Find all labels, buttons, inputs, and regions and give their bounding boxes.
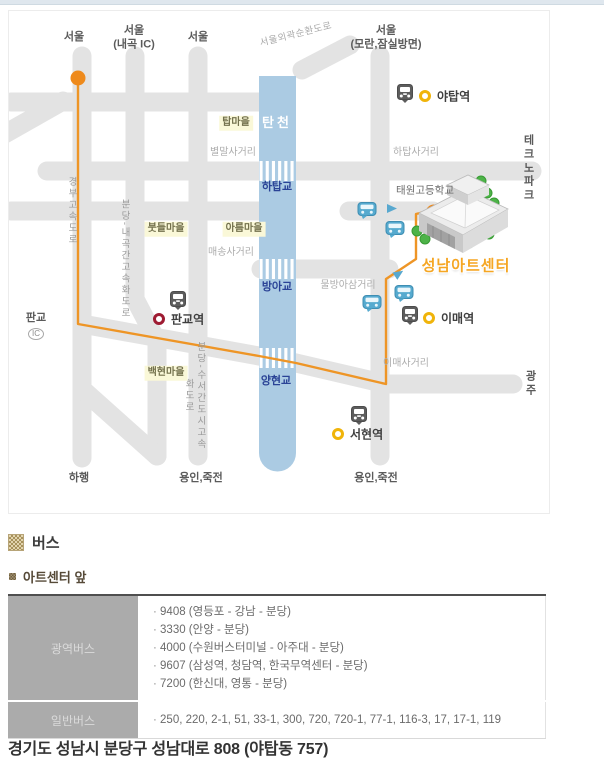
bus-route-item: 250, 220, 2-1, 51, 33-1, 300, 720, 720-1…: [153, 711, 535, 729]
page-top-strip: [0, 0, 604, 5]
bus-category-cell: 일반버스: [8, 702, 138, 738]
section-checker-icon: [8, 534, 24, 551]
station-line-ring: [332, 428, 344, 440]
bus-subsection-header: 아트센터 앞: [9, 567, 86, 586]
bus-route-item: 4000 (수원버스터미널 - 아주대 - 분당): [153, 639, 535, 657]
subsection-bullet-icon: [9, 573, 16, 580]
bus-table-row: 일반버스250, 220, 2-1, 51, 33-1, 300, 720, 7…: [8, 700, 546, 738]
bus-table-row: 광역버스9408 (영등포 - 강남 - 분당)3330 (안양 - 분당)40…: [8, 596, 546, 700]
station-label: 서현역: [350, 426, 383, 443]
bus-route-item: 3330 (안양 - 분당): [153, 621, 535, 639]
bus-route-item: 9607 (삼성역, 청담역, 한국무역센터 - 분당): [153, 657, 535, 675]
station-label: 이매역: [441, 310, 474, 327]
bus-routes-cell: 250, 220, 2-1, 51, 33-1, 300, 720, 720-1…: [138, 702, 546, 738]
bus-route-item: 9408 (영등포 - 강남 - 분당): [153, 603, 535, 621]
station-label: 판교역: [171, 311, 204, 328]
station-label: 야탑역: [437, 88, 470, 105]
address-text: 경기도 성남시 분당구 성남대로 808 (야탑동 757): [8, 735, 328, 759]
river-tancheon: [259, 76, 296, 472]
arts-center-building: [412, 175, 508, 253]
bus-category-cell: 광역버스: [8, 596, 138, 700]
bus-routes-cell: 9408 (영등포 - 강남 - 분당)3330 (안양 - 분당)4000 (…: [138, 596, 546, 700]
bus-section-title: 버스: [32, 532, 60, 553]
station-line-ring: [153, 313, 165, 325]
station-line-ring: [423, 312, 435, 324]
bus-section-header: 버스: [8, 532, 60, 553]
bus-route-item: 7200 (한신대, 영통 - 분당): [153, 675, 535, 693]
bus-subsection-title: 아트센터 앞: [23, 567, 86, 586]
bus-table: 광역버스9408 (영등포 - 강남 - 분당)3330 (안양 - 분당)40…: [8, 594, 546, 739]
route-map: 서울서울 (내곡 IC)서울서울 (모란,잠실방면)서울외곽순환도로탄천탑마을별…: [8, 10, 550, 514]
station-line-ring: [419, 90, 431, 102]
map-canvas: [9, 11, 549, 513]
